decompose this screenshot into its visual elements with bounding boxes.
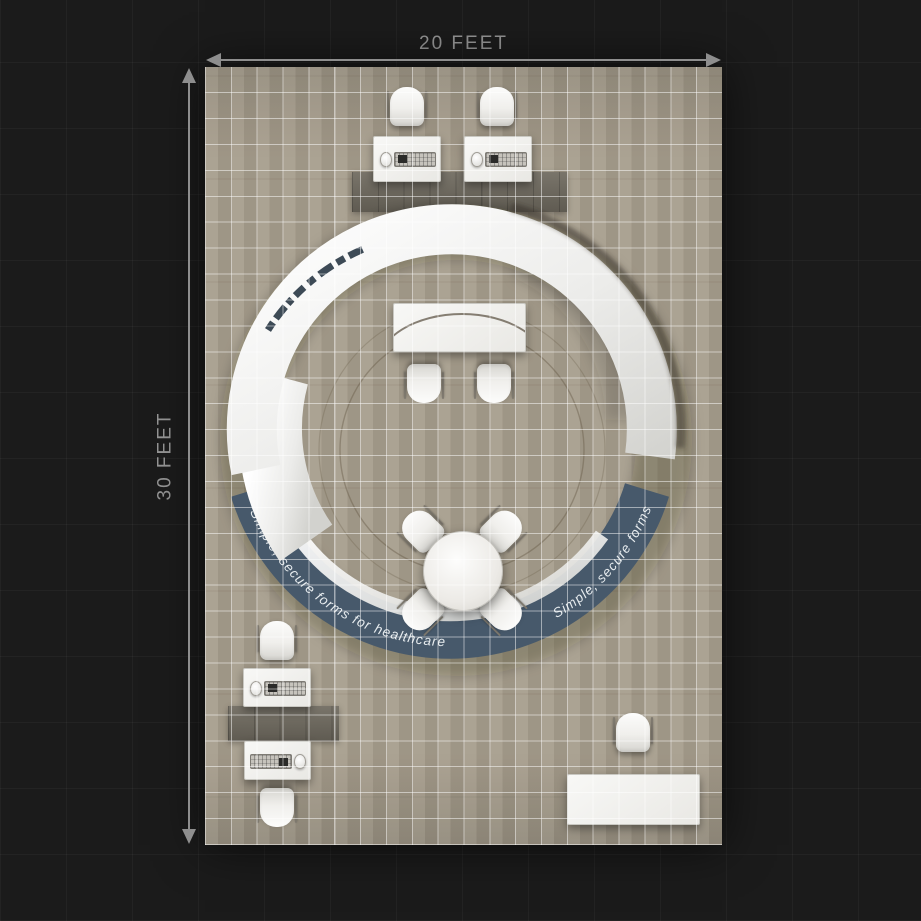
round-meeting-table bbox=[423, 531, 503, 611]
mouse bbox=[380, 152, 392, 167]
chair bbox=[387, 86, 427, 129]
chair-seat bbox=[390, 87, 424, 126]
arrow-left-icon bbox=[206, 53, 221, 67]
keyboard bbox=[250, 754, 292, 769]
keyboard bbox=[394, 152, 436, 167]
keyboard bbox=[485, 152, 527, 167]
ring-and-dimensions-layer: Simple, secure forms for healthcare Simp… bbox=[0, 0, 921, 921]
chair bbox=[477, 86, 517, 129]
demo-table-arc bbox=[393, 313, 526, 352]
chair-arm bbox=[651, 717, 653, 744]
mouse bbox=[471, 152, 483, 167]
chair-arm bbox=[404, 372, 406, 399]
chair bbox=[257, 620, 297, 663]
chair-arm bbox=[512, 372, 514, 399]
mouse bbox=[294, 754, 306, 769]
workstation-desk bbox=[464, 136, 532, 182]
chair bbox=[474, 361, 514, 404]
chair-seat bbox=[480, 87, 514, 126]
keyboard-logo bbox=[268, 684, 277, 692]
chair-arm bbox=[425, 91, 427, 118]
workstation-desk bbox=[243, 668, 311, 707]
chair-arm bbox=[515, 91, 517, 118]
chair-arm bbox=[613, 717, 615, 744]
chair-arm bbox=[442, 372, 444, 399]
demo-table bbox=[393, 303, 526, 352]
chair bbox=[613, 712, 653, 755]
reception-table bbox=[567, 774, 700, 825]
chair-seat bbox=[260, 788, 294, 827]
chair-seat bbox=[260, 621, 294, 660]
arrow-right-icon bbox=[706, 53, 721, 67]
workstation-desk bbox=[244, 741, 311, 780]
keyboard-logo bbox=[398, 155, 407, 163]
chair-arm bbox=[477, 91, 479, 118]
keyboard bbox=[264, 681, 306, 696]
dimension-height-line bbox=[182, 68, 196, 844]
chair-seat bbox=[477, 364, 511, 403]
chair-arm bbox=[295, 796, 297, 823]
dimension-width-line bbox=[206, 53, 721, 67]
arrow-up-icon bbox=[182, 68, 196, 83]
chair-seat bbox=[616, 713, 650, 752]
chair-arm bbox=[474, 372, 476, 399]
arrow-down-icon bbox=[182, 829, 196, 844]
chair-arm bbox=[257, 625, 259, 652]
chair-seat bbox=[407, 364, 441, 403]
mouse bbox=[250, 681, 262, 696]
chair-arm bbox=[257, 796, 259, 823]
booth-floor-plan: 20 FEET 30 FEET bbox=[0, 0, 921, 921]
workstation-desk bbox=[373, 136, 441, 182]
chair-arm bbox=[295, 625, 297, 652]
keyboard-logo bbox=[279, 758, 288, 766]
keyboard-logo bbox=[489, 155, 498, 163]
chair-arm bbox=[387, 91, 389, 118]
chair bbox=[404, 361, 444, 404]
chair bbox=[257, 785, 297, 828]
